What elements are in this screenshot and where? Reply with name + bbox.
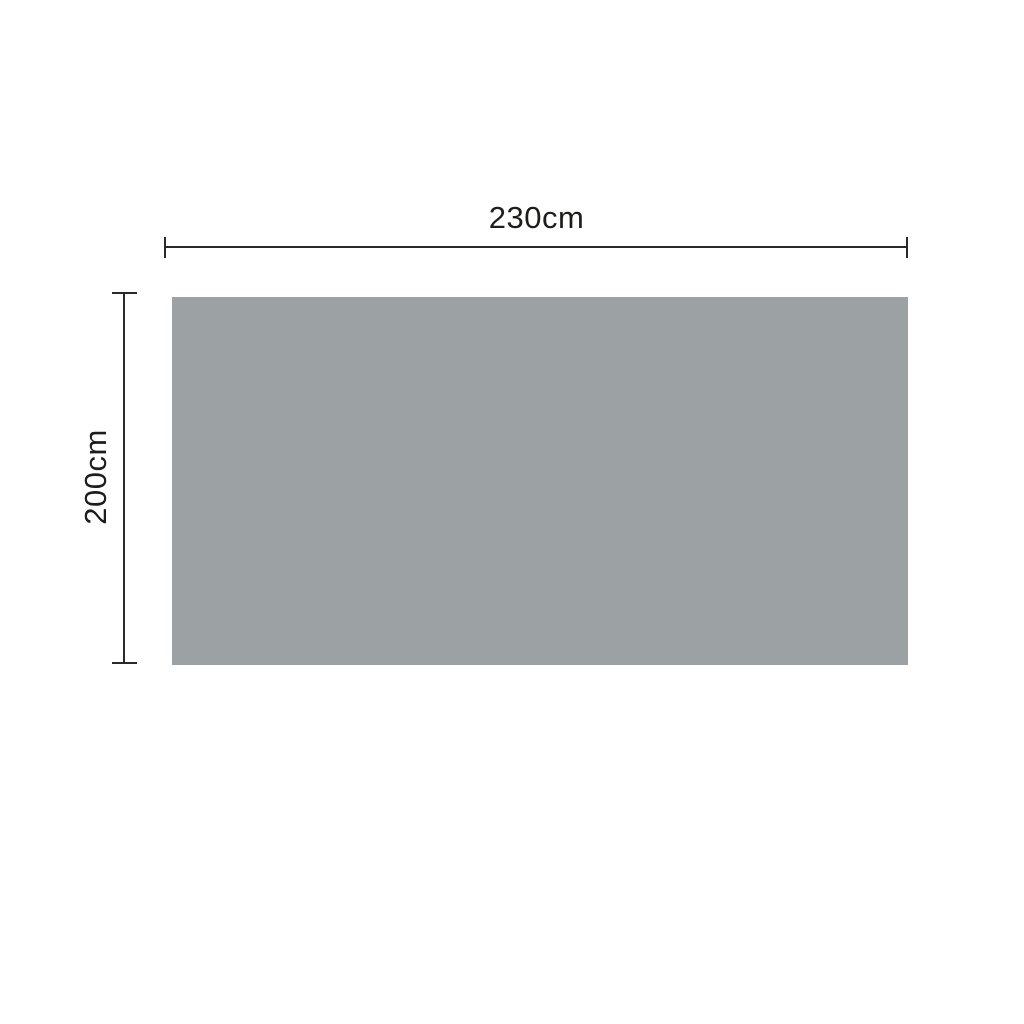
height-dimension-label: 200cm [79, 429, 113, 525]
dimension-diagram: 230cm 200cm [0, 0, 1024, 1024]
height-dimension-tick-bottom [112, 662, 137, 664]
height-dimension-tick-top [112, 292, 137, 294]
width-dimension-tick-left [164, 237, 166, 258]
height-dimension-line [123, 293, 125, 663]
width-dimension-label: 230cm [165, 201, 908, 235]
product-rectangle [172, 297, 908, 665]
width-dimension-line [165, 246, 908, 248]
width-dimension-tick-right [906, 237, 908, 258]
